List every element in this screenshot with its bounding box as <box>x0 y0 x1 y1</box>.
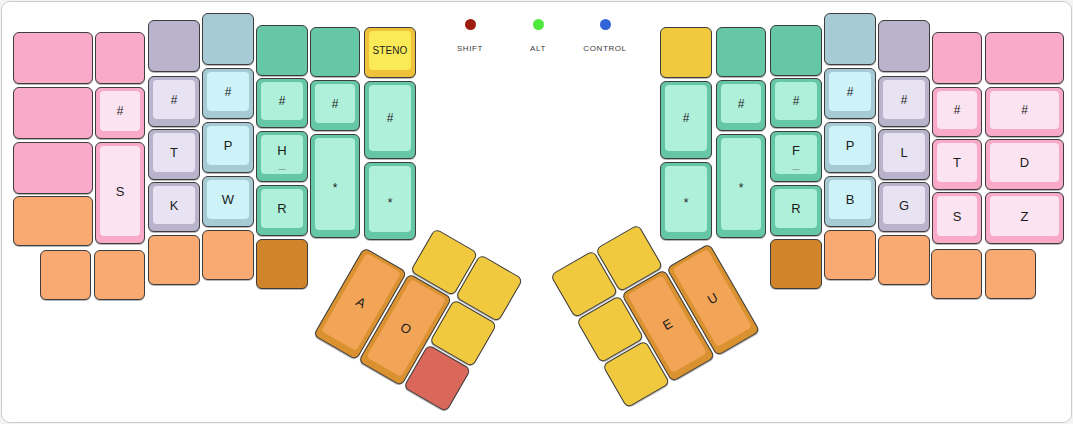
key-s-left: S <box>95 142 145 244</box>
keycap-top: # <box>665 85 707 151</box>
keycap-top: B <box>829 180 871 219</box>
key-p-left: P <box>202 122 254 173</box>
rh-bottom-2 <box>824 230 876 280</box>
key-hash-left-6: # <box>364 81 416 159</box>
key-label: T <box>953 156 961 169</box>
key-h: H_ <box>256 131 308 182</box>
key-label: * <box>739 182 744 194</box>
key-label: # <box>171 94 178 106</box>
key-hash-right-7: # <box>985 87 1064 137</box>
key-steno: STENO <box>364 27 416 78</box>
rh-bottom-4 <box>931 249 982 299</box>
key-label: R <box>277 202 286 215</box>
underline-mark: _ <box>279 161 286 165</box>
key-g: G <box>878 182 930 232</box>
rh-bottom-1 <box>770 239 822 289</box>
keycap-top: # <box>100 91 140 131</box>
key-label: R <box>791 202 800 215</box>
shift-indicator-dot <box>465 19 476 30</box>
key-hash-left-4: # <box>256 78 308 128</box>
keycap-top: # <box>153 80 195 119</box>
keycap-top: STENO <box>369 31 411 70</box>
key-p-right: P <box>824 122 876 173</box>
lh-col1-row0 <box>95 32 145 84</box>
key-hash-right-1: # <box>660 81 712 159</box>
key-label: Z <box>1021 210 1029 223</box>
key-label: P <box>224 139 233 152</box>
key-label: S <box>953 210 962 223</box>
keycap-top: T <box>153 133 195 172</box>
lh-col5-row0 <box>310 27 360 77</box>
rh-col1-row0 <box>716 27 766 77</box>
control-indicator-label: CONTROL <box>583 44 626 53</box>
key-hash-left-2: # <box>148 76 200 127</box>
keycap-top: K <box>153 186 195 224</box>
rh-col5-row0 <box>932 32 982 84</box>
keycap-top: F_ <box>775 135 817 174</box>
key-hash-right-4: # <box>824 68 876 119</box>
keycap-top: R <box>261 189 303 228</box>
rh-inner-row0 <box>660 27 712 78</box>
key-label: T <box>170 146 178 159</box>
key-label: # <box>738 98 745 110</box>
key-label: STENO <box>373 46 408 56</box>
rh-outer-row0 <box>985 32 1064 84</box>
key-label: E <box>660 316 674 332</box>
key-label: L <box>900 146 907 159</box>
key-label: # <box>225 86 232 98</box>
key-label: W <box>222 193 234 206</box>
key-hash-left-3: # <box>202 68 254 119</box>
keyboard-canvas: #S#TK#PW#H_R#*STENO#*#*#*#F_R#PB#LG#TS#D… <box>1 1 1072 423</box>
keycap-top: # <box>990 91 1059 129</box>
key-label: G <box>899 199 909 212</box>
keycap-top: H_ <box>261 135 303 174</box>
rh-bottom-3 <box>878 235 930 285</box>
keycap-top: # <box>775 82 817 120</box>
key-label: # <box>793 95 800 107</box>
key-hash-right-3: # <box>770 78 822 128</box>
key-hash-left-1: # <box>95 87 145 139</box>
key-d: D <box>985 139 1064 190</box>
keycap-top: L <box>883 133 925 172</box>
key-z: Z <box>985 192 1064 244</box>
steno-layout-display: #S#TK#PW#H_R#*STENO#*#*#*#F_R#PB#LG#TS#D… <box>0 0 1073 424</box>
key-star-left-1: * <box>310 134 360 238</box>
keycap-top: # <box>207 72 249 111</box>
key-hash-right-2: # <box>716 80 766 131</box>
key-r-right: R <box>770 185 822 236</box>
key-star-right-2: * <box>716 134 766 238</box>
lh-bottom-4 <box>202 230 254 280</box>
underline-mark: _ <box>793 161 800 165</box>
key-hash-left-5: # <box>310 80 360 131</box>
lh-col4-row0 <box>256 25 308 76</box>
key-label: P <box>846 139 855 152</box>
keycap-top: # <box>261 82 303 120</box>
rh-col4-row0 <box>878 20 930 72</box>
keycap-top: # <box>721 84 761 123</box>
key-label: # <box>954 104 961 116</box>
rh-bottom-5 <box>985 249 1036 299</box>
legend-alt: ALT <box>498 19 578 53</box>
key-w: W <box>202 176 254 227</box>
lh-bottom-2 <box>94 250 145 300</box>
key-label: O <box>399 320 414 336</box>
key-label: # <box>1021 104 1028 116</box>
keycap-top: R <box>775 189 817 228</box>
lh-bottom-5 <box>256 239 308 289</box>
keycap-top: # <box>315 84 355 123</box>
shift-indicator-label: SHIFT <box>457 44 483 53</box>
legend-shift: SHIFT <box>430 19 510 53</box>
key-label: D <box>1020 156 1029 169</box>
lh-outer-row3 <box>13 196 93 246</box>
key-label: # <box>279 95 286 107</box>
key-label: # <box>387 112 394 124</box>
keycap-top: # <box>937 91 977 129</box>
key-t-right: T <box>932 139 982 190</box>
lh-col2-row0 <box>148 20 200 72</box>
keycap-top: W <box>207 180 249 219</box>
lh-bottom-3 <box>148 235 200 285</box>
lh-col3-row0 <box>202 13 254 65</box>
key-hash-right-5: # <box>878 76 930 127</box>
keycap-top: * <box>315 138 355 230</box>
rh-col2-row0 <box>770 25 822 76</box>
key-l: L <box>878 129 930 180</box>
legend-control: CONTROL <box>565 19 645 53</box>
keycap-top: P <box>207 126 249 165</box>
key-r-left: R <box>256 185 308 236</box>
keycap-top: Z <box>990 196 1059 236</box>
lh-outer-row0 <box>13 32 93 84</box>
keycap-top: # <box>369 85 411 151</box>
key-label: # <box>332 98 339 110</box>
lh-bottom-1 <box>40 250 91 300</box>
key-b: B <box>824 176 876 227</box>
key-s-right: S <box>932 192 982 244</box>
keycap-top: # <box>829 72 871 111</box>
key-label: * <box>333 182 338 194</box>
keycap-top: # <box>883 80 925 119</box>
key-label: K <box>170 199 179 212</box>
keycap-top: S <box>937 196 977 236</box>
key-f: F_ <box>770 131 822 182</box>
keycap-top: S <box>100 146 140 236</box>
keycap-top: G <box>883 186 925 224</box>
keycap-top: P <box>829 126 871 165</box>
keycap-top: * <box>721 138 761 230</box>
control-indicator-dot <box>600 19 611 30</box>
key-k: K <box>148 182 200 232</box>
lh-outer-row2 <box>13 142 93 194</box>
lh-outer-row1 <box>13 87 93 139</box>
key-label: S <box>116 185 125 198</box>
key-label: # <box>901 94 908 106</box>
alt-indicator-dot <box>533 19 544 30</box>
key-label: # <box>117 105 124 117</box>
key-label: A <box>354 294 368 310</box>
key-label: # <box>683 112 690 124</box>
key-hash-right-6: # <box>932 87 982 137</box>
keycap-top: D <box>990 143 1059 182</box>
key-label: U <box>705 290 720 306</box>
alt-indicator-label: ALT <box>530 44 546 53</box>
rh-col3-row0 <box>824 13 876 65</box>
keycap-top: T <box>937 143 977 182</box>
key-label: # <box>847 86 854 98</box>
key-t-left: T <box>148 129 200 180</box>
key-label: B <box>846 193 855 206</box>
